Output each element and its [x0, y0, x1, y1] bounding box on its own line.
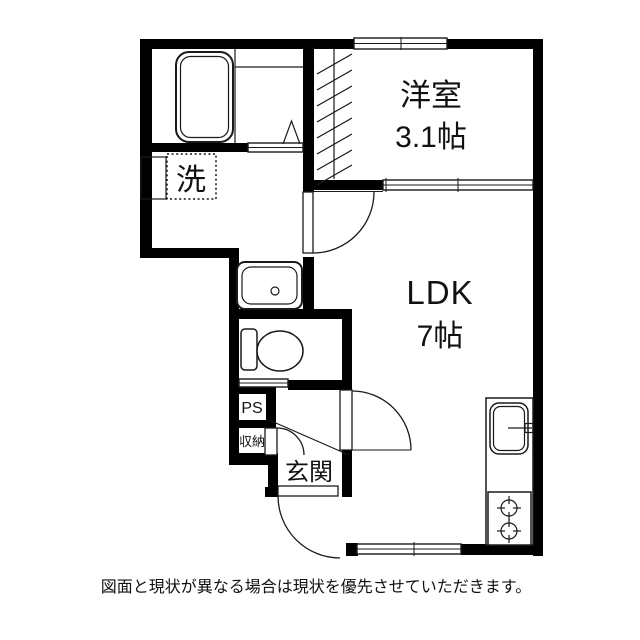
wall-washroom-south	[229, 309, 352, 319]
disclaimer-note: 図面と現状が異なる場合は現状を優先させていただきます。	[101, 578, 531, 596]
wall-bath-south	[140, 143, 248, 152]
floor-plan-page: 洗	[0, 0, 640, 640]
wall-bath-east	[303, 39, 314, 192]
toilet	[241, 329, 303, 371]
bathroom-folding-door	[248, 121, 303, 152]
wall-hall-east-lower	[303, 257, 314, 309]
entrance-step-line	[269, 420, 349, 455]
western-room-label: 洋室	[400, 78, 462, 113]
window-top	[354, 37, 447, 50]
storage-label: 収納	[239, 434, 265, 449]
sliding-door-western-room	[383, 178, 533, 192]
pipe-space-label: PS	[241, 400, 262, 417]
wall-entrance-right-lower	[342, 450, 352, 497]
laundry-label: 洗	[176, 164, 206, 197]
floor-plan-drawing: 洗	[0, 0, 640, 640]
loft-ladder	[317, 49, 352, 185]
laundry-space: 洗	[167, 154, 216, 199]
ldk-label: LDK	[406, 274, 473, 311]
window-bottom	[357, 542, 461, 556]
wall-corridor-bottom	[140, 248, 239, 258]
front-door	[278, 486, 340, 558]
toilet-door	[239, 379, 288, 387]
wall-top-left	[140, 39, 355, 49]
wall-western-south	[303, 180, 383, 190]
wall-top-right	[447, 39, 543, 49]
hall-to-ldk-door	[303, 192, 383, 254]
bathroom	[141, 49, 303, 199]
wall-ps-bottom	[229, 420, 276, 428]
washbasin	[237, 262, 302, 309]
kitchen	[486, 398, 533, 545]
wall-toilet-bottom	[288, 380, 352, 390]
toilet-tank	[241, 329, 257, 370]
bathtub	[176, 52, 233, 142]
ldk-size: 7帖	[417, 320, 464, 353]
entrance-to-ldk-door	[340, 390, 411, 450]
wall-bottom-corner	[346, 543, 358, 556]
wall-left-upper	[140, 49, 152, 258]
western-room-size: 3.1帖	[395, 121, 467, 154]
swing-doors	[265, 192, 411, 559]
folding-door-marker	[283, 121, 300, 144]
wall-entrance-bottom-left	[265, 487, 278, 497]
wall-toilet-right	[342, 312, 352, 390]
entrance-label: 玄関	[285, 459, 333, 486]
storage-door	[265, 428, 304, 455]
toilet-bowl	[257, 331, 303, 371]
wall-right	[533, 39, 543, 556]
